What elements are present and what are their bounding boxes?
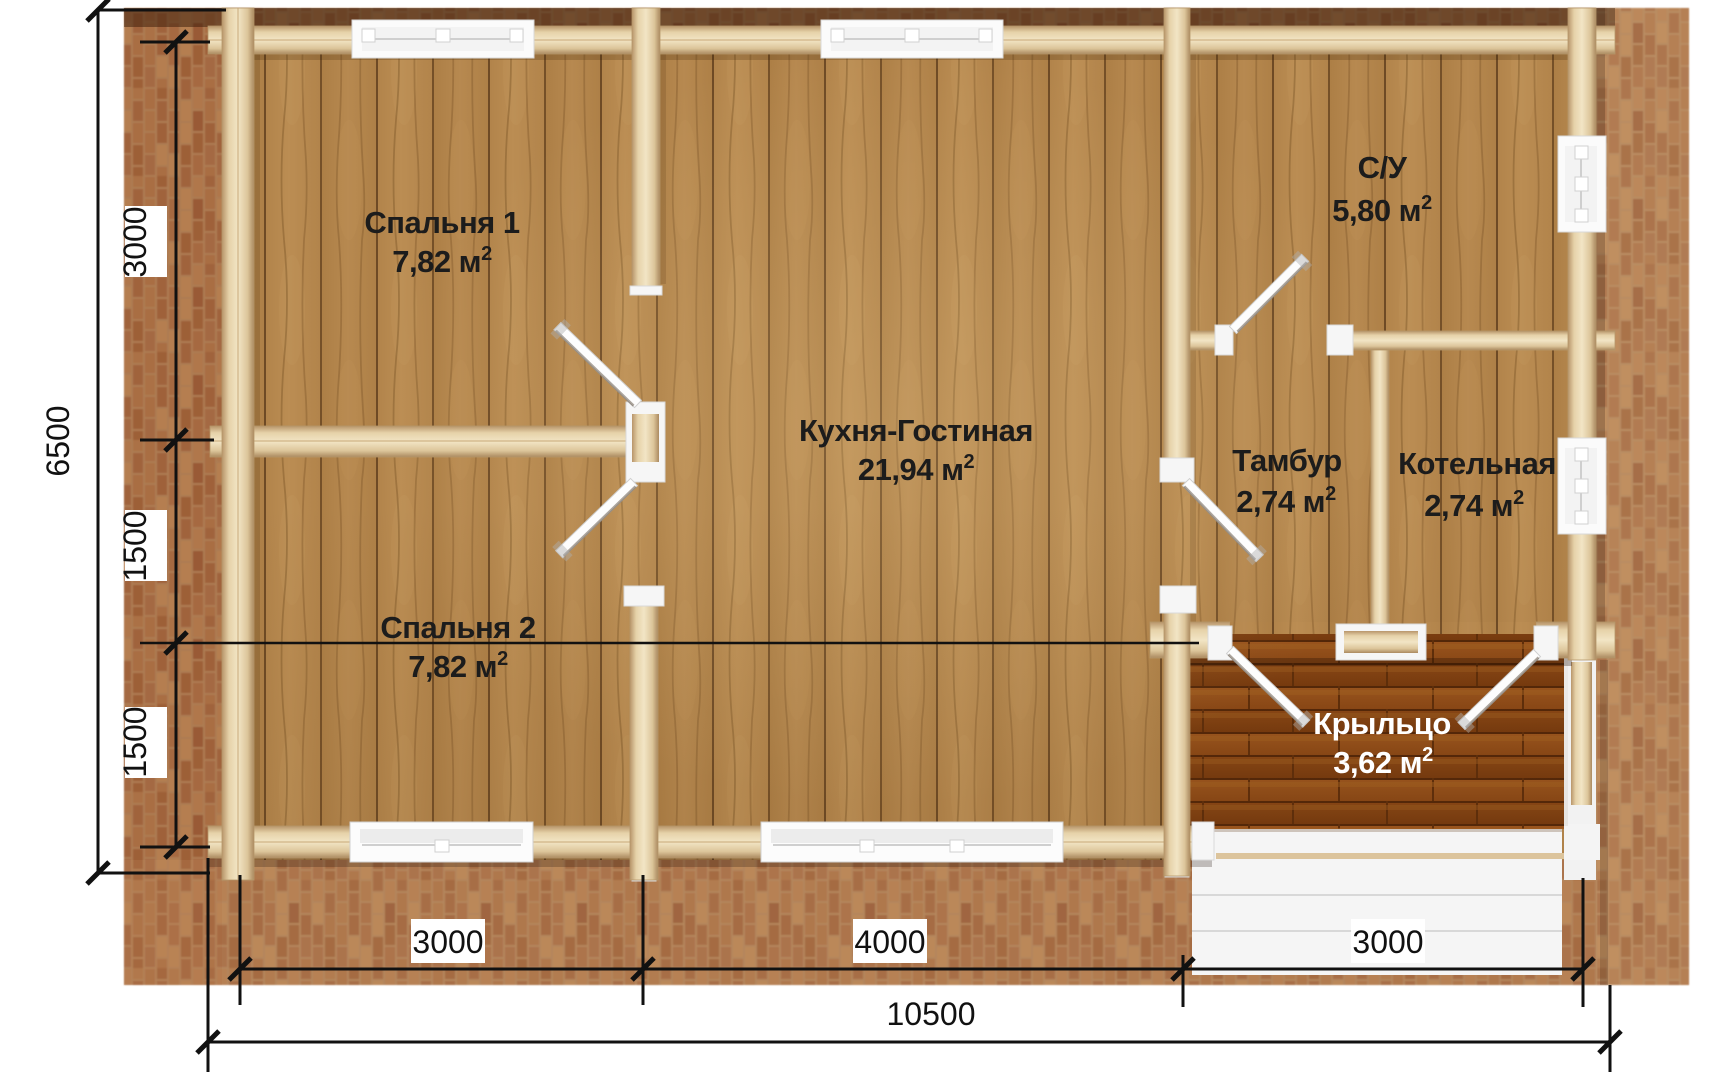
svg-text:21,94 м2: 21,94 м2 (858, 451, 975, 487)
svg-text:С/У: С/У (1358, 150, 1408, 185)
svg-text:7,82 м2: 7,82 м2 (408, 648, 508, 684)
svg-text:5,80 м2: 5,80 м2 (1332, 192, 1432, 228)
svg-text:Крыльцо: Крыльцо (1313, 706, 1451, 741)
svg-text:7,82 м2: 7,82 м2 (392, 243, 492, 279)
svg-text:1500: 1500 (117, 510, 153, 581)
svg-text:6500: 6500 (40, 405, 76, 476)
svg-text:3000: 3000 (117, 206, 153, 277)
svg-text:2,74 м2: 2,74 м2 (1424, 487, 1524, 523)
svg-text:Спальня 1: Спальня 1 (364, 205, 520, 240)
svg-text:Котельная: Котельная (1398, 446, 1556, 481)
svg-text:2,74 м2: 2,74 м2 (1236, 483, 1336, 519)
svg-text:Тамбур: Тамбур (1232, 443, 1341, 478)
svg-text:4000: 4000 (854, 924, 925, 960)
svg-text:3000: 3000 (412, 924, 483, 960)
svg-text:1500: 1500 (117, 706, 153, 777)
svg-text:Кухня-Гостиная: Кухня-Гостиная (799, 413, 1033, 448)
svg-text:10500: 10500 (887, 996, 976, 1032)
svg-text:3,62 м2: 3,62 м2 (1333, 744, 1433, 780)
svg-text:Спальня 2: Спальня 2 (380, 610, 535, 645)
svg-text:3000: 3000 (1352, 924, 1423, 960)
